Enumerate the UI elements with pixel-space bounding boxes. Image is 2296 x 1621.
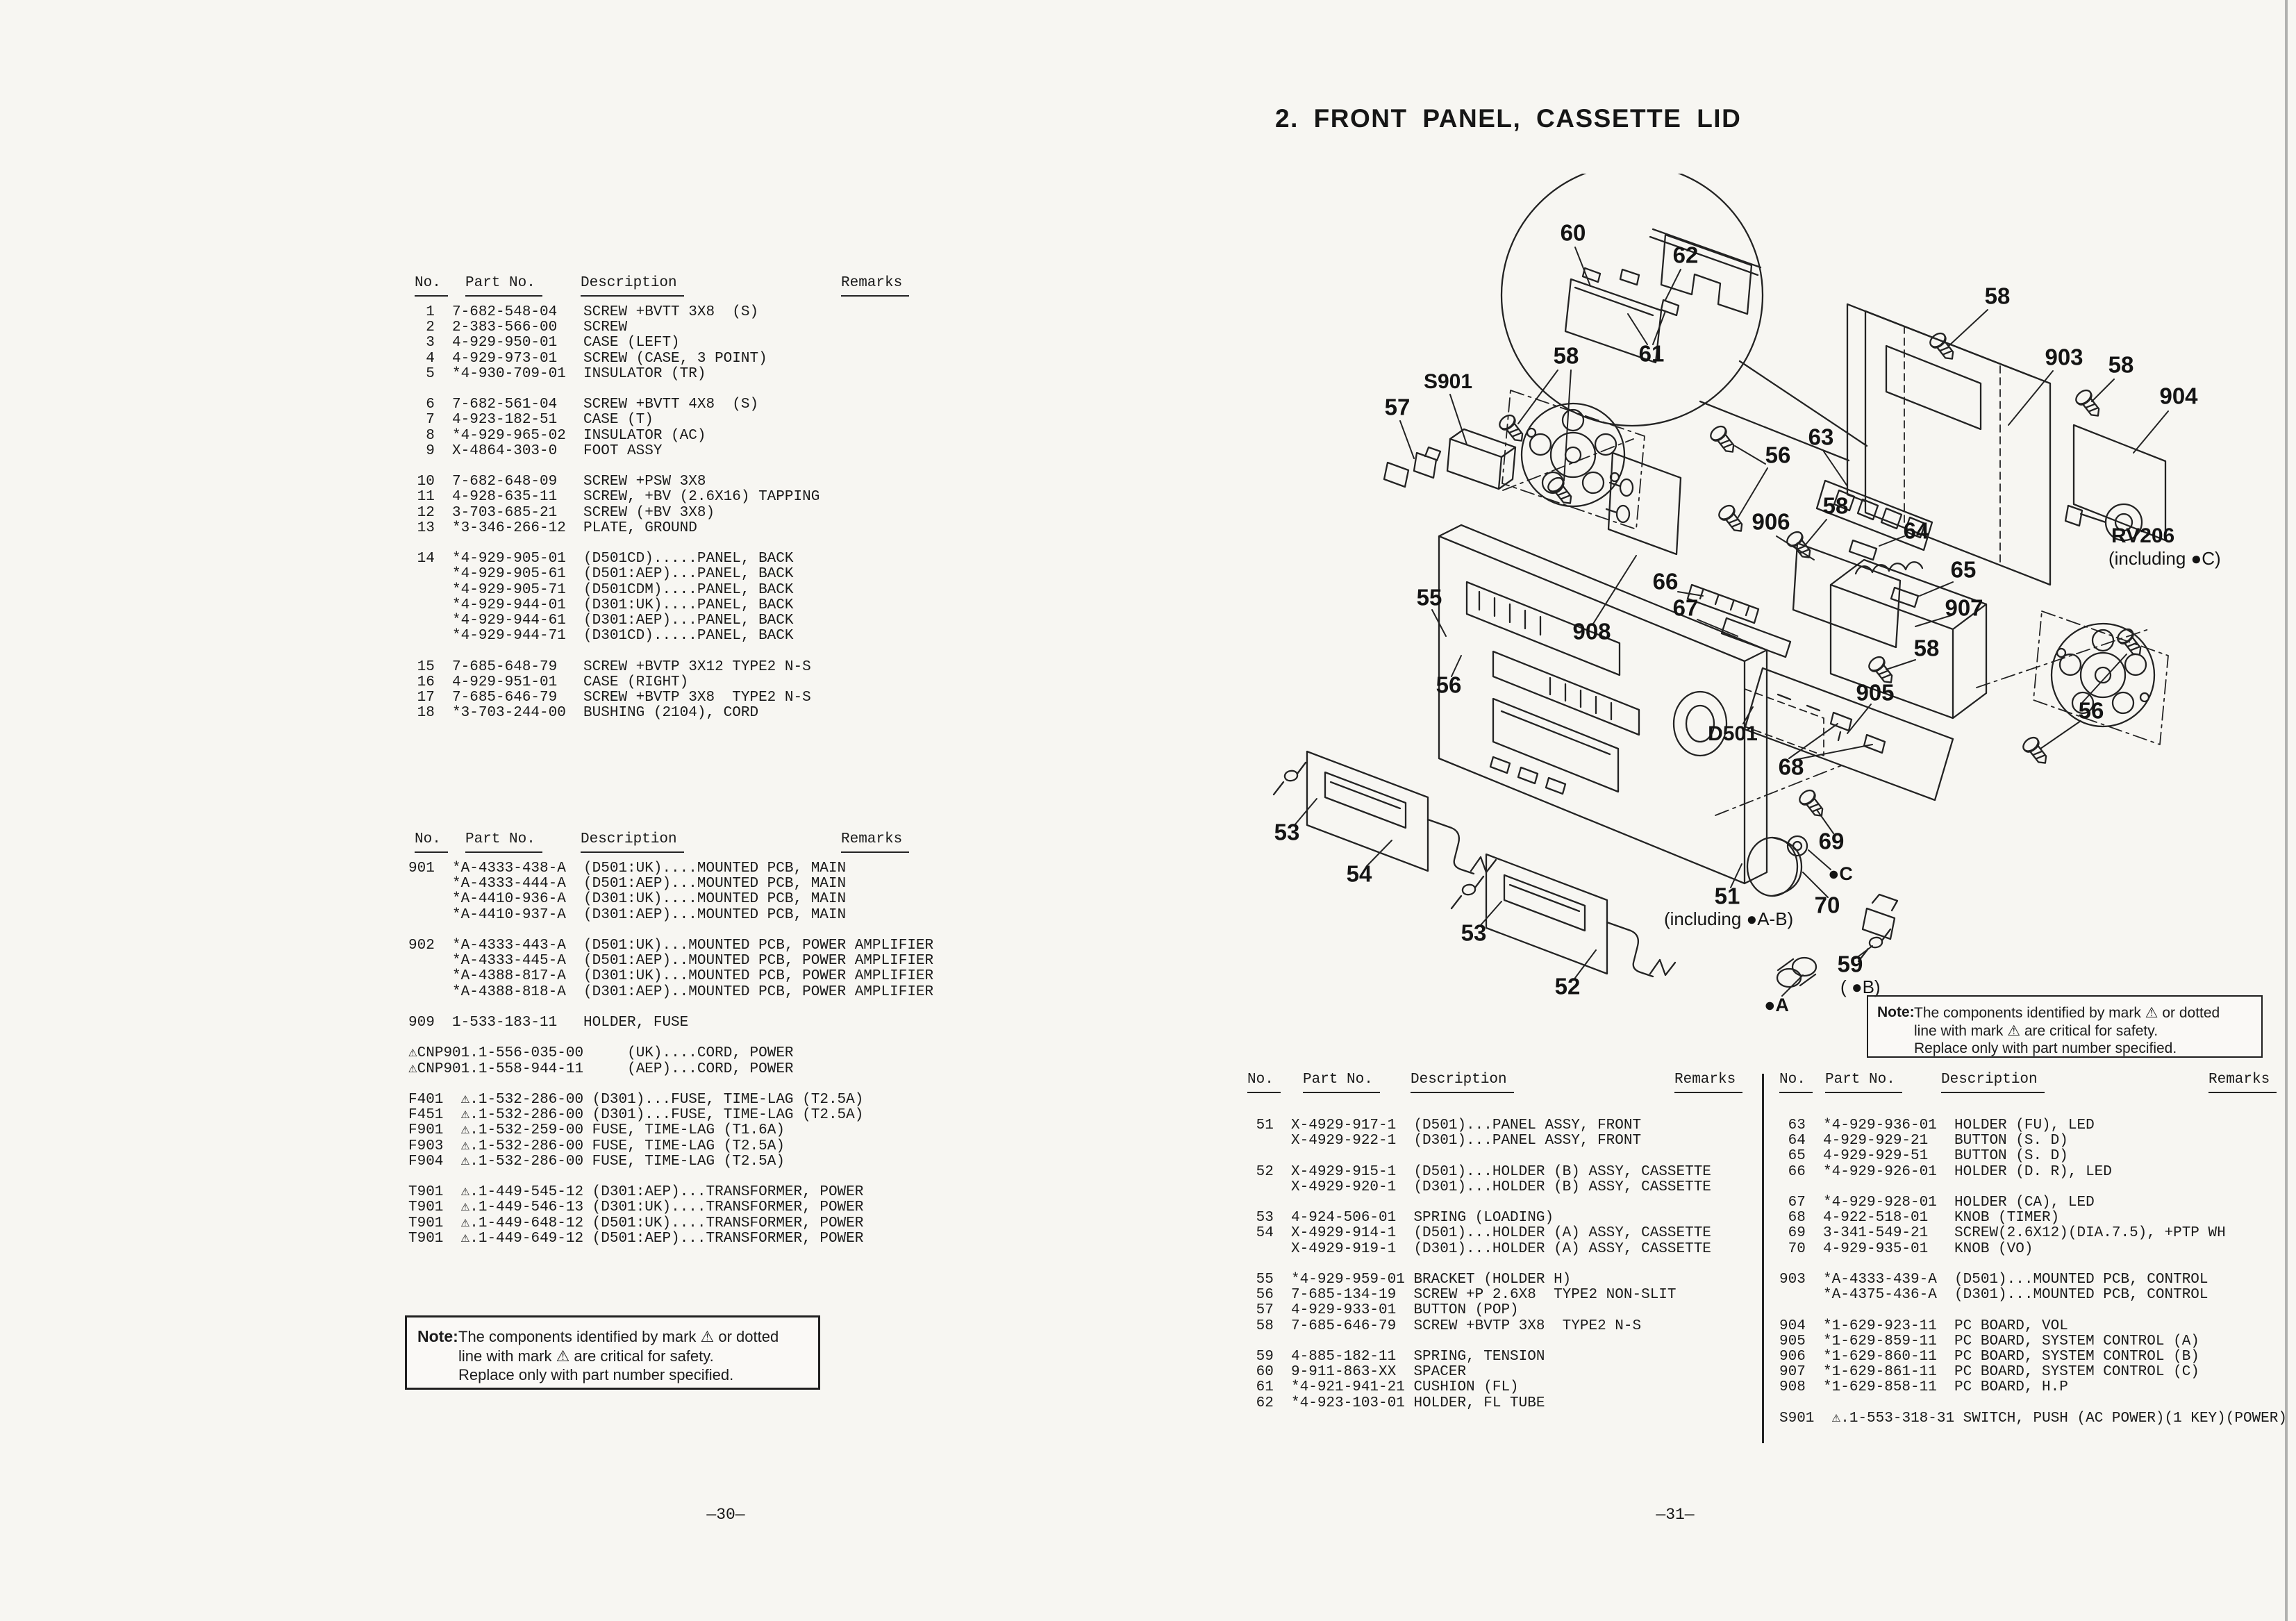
callout-label-56: 56 — [1765, 442, 1791, 468]
callout-label-58: 58 — [1554, 343, 1579, 369]
callout-label-61: 61 — [1639, 341, 1665, 367]
note-line: Replace only with part number specified. — [1914, 1040, 2220, 1058]
table-rows: 1 7-682-548-04 SCREW +BVTT 3X8 (S) 2 2-3… — [408, 305, 820, 721]
note-line: Replace only with part number specified. — [458, 1365, 779, 1385]
table-column-divider — [1762, 1074, 1764, 1443]
callout-label-68: 68 — [1779, 754, 1804, 780]
page-number-right: —31— — [1627, 1506, 1724, 1524]
callout-label-67: 67 — [1673, 595, 1699, 621]
column-header-remarks: Remarks — [1674, 1072, 1742, 1093]
callout-label-A: ●A — [1764, 995, 1789, 1015]
column-header-part: Part No. — [1825, 1072, 1902, 1093]
callout-label-RV206: RV206 — [2111, 524, 2174, 547]
column-header-no: No. — [1247, 1072, 1281, 1093]
callout-label-906: 906 — [1752, 509, 1790, 535]
callout-label-55: 55 — [1417, 585, 1442, 610]
note-line: The components identified by mark ⚠ or d… — [1914, 1004, 2220, 1022]
page-number-left: —30— — [677, 1506, 774, 1524]
callout-label-58: 58 — [2108, 352, 2134, 378]
column-header-part: Part No. — [1303, 1072, 1380, 1093]
table-rows: 901 *A-4333-438-A (D501:UK)....MOUNTED P… — [408, 861, 933, 1247]
callout-label-53: 53 — [1274, 820, 1300, 845]
column-header-remarks: Remarks — [841, 275, 909, 297]
scan-edge-shadow — [2285, 0, 2288, 1621]
callout-label-70: 70 — [1815, 892, 1840, 918]
exploded-diagram: 60625861S9015758903589046356589066465RV2… — [1181, 174, 2296, 1076]
table-rows: 51 X-4929-917-1 (D501)...PANEL ASSY, FRO… — [1247, 1118, 1711, 1411]
callout-label-908: 908 — [1572, 619, 1611, 645]
callout-label-60: 60 — [1561, 220, 1586, 246]
callout-label-905: 905 — [1856, 680, 1894, 706]
callout-label-65: 65 — [1951, 557, 1977, 583]
callout-label-53: 53 — [1461, 920, 1487, 946]
note-label: Note: — [417, 1327, 458, 1346]
callout-label-51: 51 — [1715, 883, 1740, 909]
callout-label-66: 66 — [1653, 569, 1679, 595]
note-line: line with mark ⚠ are critical for safety… — [458, 1347, 779, 1366]
callout-label-56: 56 — [1436, 672, 1462, 698]
column-header-description: Description — [581, 275, 684, 297]
note-label: Note: — [1877, 1004, 1915, 1021]
callout-label-57: 57 — [1385, 394, 1411, 420]
safety-note-box: Note: The components identified by mark … — [1867, 995, 2263, 1058]
table-rows: 63 *4-929-936-01 HOLDER (FU), LED 64 4-9… — [1779, 1118, 2287, 1427]
column-header-part: Part No. — [465, 275, 542, 297]
callout-label-904: 904 — [2159, 383, 2198, 409]
callout-label-62: 62 — [1673, 242, 1699, 268]
note-text: The components identified by mark ⚠ or d… — [458, 1327, 779, 1385]
callout-label-69: 69 — [1819, 829, 1845, 854]
column-header-no: No. — [415, 275, 448, 297]
callout-label-63: 63 — [1808, 424, 1834, 450]
page-title: 2. FRONT PANEL, CASSETTE LID — [1275, 104, 1741, 133]
callout-label-B: ( ●B) — [1840, 976, 1881, 997]
callout-label-58: 58 — [1823, 493, 1849, 519]
column-header-description: Description — [1941, 1072, 2045, 1093]
column-header-description: Description — [581, 831, 684, 853]
column-header-part: Part No. — [465, 831, 542, 853]
callout-label-64: 64 — [1904, 518, 1929, 544]
callout-label-includingC: (including ●C) — [2108, 548, 2221, 569]
callout-label-54: 54 — [1347, 861, 1372, 887]
callout-label-includingAB: (including ●A-B) — [1664, 908, 1793, 929]
callout-label-S901: S901 — [1424, 370, 1472, 393]
note-line: The components identified by mark ⚠ or d… — [458, 1327, 779, 1347]
callout-label-52: 52 — [1555, 974, 1581, 999]
callout-label-D501: D501 — [1708, 722, 1758, 745]
callout-label-59: 59 — [1838, 951, 1863, 977]
callout-label-903: 903 — [2045, 344, 2083, 370]
note-line: line with mark ⚠ are critical for safety… — [1914, 1022, 2220, 1040]
diagram-callouts: 60625861S9015758903589046356589066465RV2… — [1274, 220, 2221, 1015]
callout-label-58: 58 — [1914, 635, 1940, 661]
callout-label-C: ●C — [1828, 863, 1853, 884]
column-header-remarks: Remarks — [2208, 1072, 2277, 1093]
column-header-description: Description — [1411, 1072, 1514, 1093]
callout-label-58: 58 — [1985, 283, 2011, 309]
callout-label-56: 56 — [2079, 698, 2104, 724]
safety-note-box: Note: The components identified by mark … — [405, 1315, 820, 1390]
column-header-no: No. — [1779, 1072, 1813, 1093]
column-header-remarks: Remarks — [841, 831, 909, 853]
column-header-no: No. — [415, 831, 448, 853]
note-text: The components identified by mark ⚠ or d… — [1914, 1004, 2220, 1058]
callout-label-907: 907 — [1945, 595, 1983, 621]
